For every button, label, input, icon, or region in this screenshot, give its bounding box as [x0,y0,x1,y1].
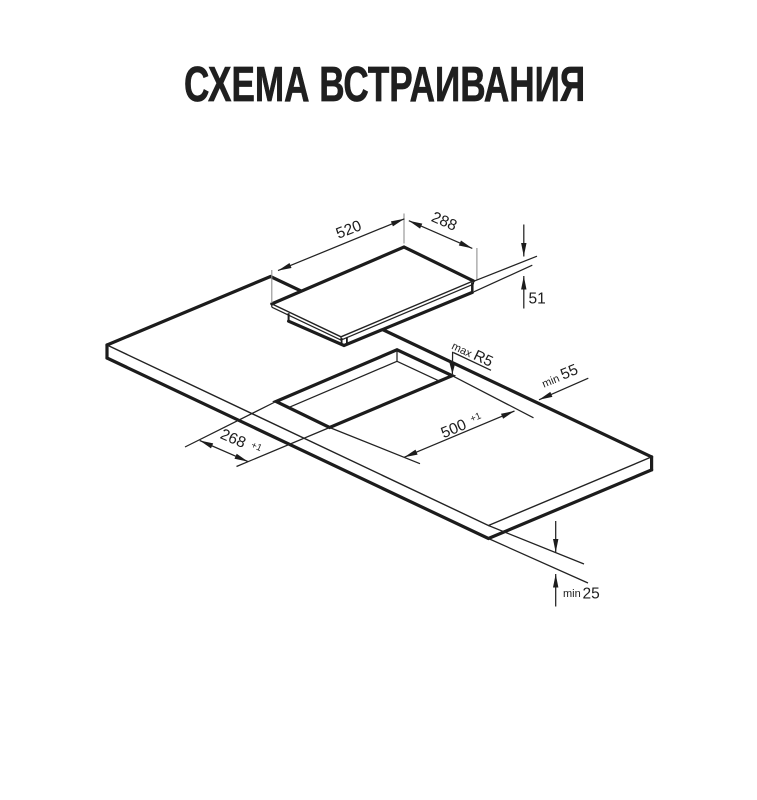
svg-text:min: min [563,588,581,600]
svg-text:25: 25 [583,586,600,603]
svg-text:51: 51 [529,291,546,308]
